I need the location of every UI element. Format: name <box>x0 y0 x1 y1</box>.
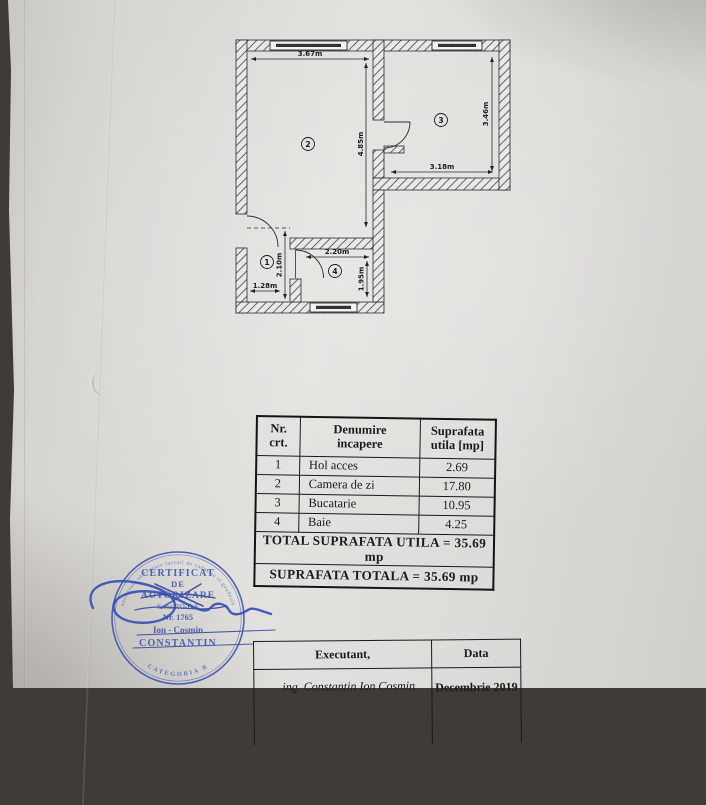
room-number-living: 2 <box>305 140 310 149</box>
header-suprafata: Suprafata utila [mp] <box>420 419 496 460</box>
room-area: 17.80 <box>419 477 495 497</box>
area-table-header: Nr. crt. Denumire incapere Suprafata uti… <box>256 416 496 459</box>
room-number-hall: 1 <box>264 258 269 267</box>
executant-label: Executant, <box>254 640 432 670</box>
floor-plan: 3.67m 4.85m 3.18m 3.46m 2.20m 1.95m 2.10… <box>222 32 522 324</box>
room-name: Hol acces <box>299 456 419 477</box>
footer-table: Executant, Data ing. Constantin Ion Cosm… <box>253 639 522 745</box>
row-number: 2 <box>256 475 300 495</box>
footer-value-row: ing. Constantin Ion Cosmin Decembrie 201… <box>254 667 522 745</box>
header-line: crt. <box>269 435 288 449</box>
room-area: 4.25 <box>418 515 494 535</box>
header-line: Denumire <box>333 422 386 437</box>
executant-value: ing. Constantin Ion Cosmin <box>254 668 433 745</box>
room-number-bath: 4 <box>332 267 337 276</box>
room-name: Baie <box>298 513 418 534</box>
footer-header-row: Executant, Data <box>254 639 521 669</box>
header-denumire: Denumire incapere <box>300 417 421 458</box>
dimension-label: 3.67m <box>298 50 323 58</box>
dimension-label: 4.85m <box>357 132 365 157</box>
header-line: utila [mp] <box>431 438 484 453</box>
dimension-label: 2.20m <box>325 248 350 256</box>
stamp-line-certificat: CERTIFICAT <box>141 568 215 579</box>
header-line: Suprafata <box>431 424 485 439</box>
header-nr-crt: Nr. crt. <box>256 416 300 456</box>
room-number-kitchen: 3 <box>438 116 443 125</box>
room-area: 2.69 <box>419 458 495 478</box>
dimension-label: 3.18m <box>430 163 455 171</box>
dimension-label: 2.10m <box>276 253 284 278</box>
row-number: 3 <box>255 494 299 514</box>
stamp-line-de: DE <box>171 579 185 589</box>
stamp-ring-bottom-text: CATEGORIA B <box>146 663 210 678</box>
data-value: Decembrie 2019 <box>432 667 522 743</box>
header-line: Nr. <box>270 421 287 435</box>
paper-crease-vertical <box>24 0 26 688</box>
room-name: Bucatarie <box>299 494 419 515</box>
room-number-badges <box>261 114 448 278</box>
room-area: 10.95 <box>419 496 495 516</box>
dimension-label: 3.46m <box>482 102 490 127</box>
room-name: Camera de zi <box>299 475 419 496</box>
dimension-label: 1.28m <box>253 282 278 290</box>
dimension-label: 1.95m <box>358 267 366 292</box>
row-number: 1 <box>256 456 300 476</box>
photo-background: { "plan": { "room_numbers": ["1","2","3"… <box>0 0 706 688</box>
data-label: Data <box>431 639 520 668</box>
header-line: incapere <box>337 436 383 451</box>
